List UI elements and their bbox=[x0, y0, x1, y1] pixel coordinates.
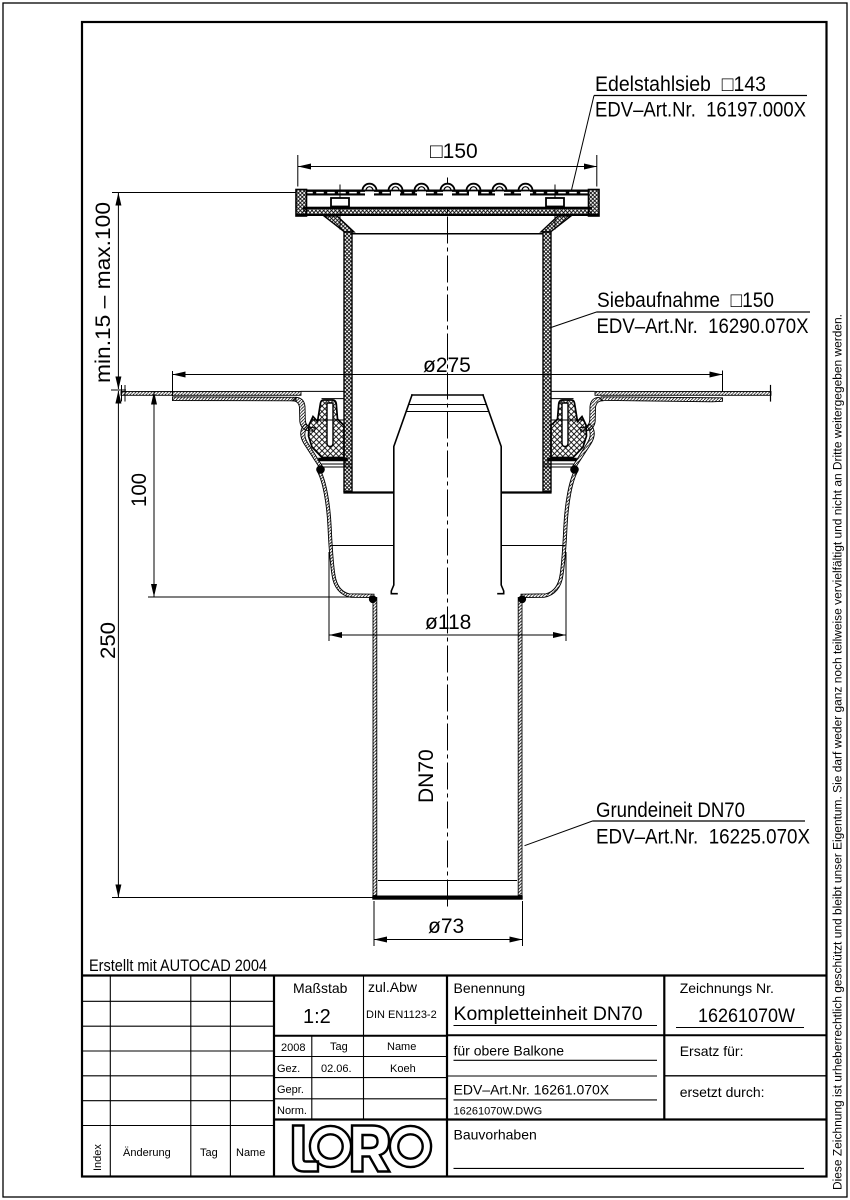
svg-text:Koeh: Koeh bbox=[390, 1063, 416, 1075]
svg-text:Zeichnungs Nr.: Zeichnungs Nr. bbox=[680, 980, 774, 996]
svg-text:Ersatz für:: Ersatz für: bbox=[680, 1043, 744, 1059]
svg-text:250: 250 bbox=[97, 622, 120, 659]
svg-text:1:2: 1:2 bbox=[303, 1006, 331, 1028]
svg-text:für obere Balkone: für obere Balkone bbox=[454, 1043, 565, 1059]
svg-text:16261070W.DWG: 16261070W.DWG bbox=[454, 1106, 543, 1118]
svg-text:Diese Zeichnung ist urheberrec: Diese Zeichnung ist urheberrechtlich ges… bbox=[831, 314, 845, 1190]
svg-text:Name: Name bbox=[236, 1147, 265, 1159]
svg-text:Erstellt mit AUTOCAD 2004: Erstellt mit AUTOCAD 2004 bbox=[89, 956, 267, 975]
svg-text:16261070W: 16261070W bbox=[698, 1006, 795, 1027]
svg-text:100: 100 bbox=[128, 473, 151, 507]
svg-text:Gez.: Gez. bbox=[277, 1063, 300, 1075]
svg-text:Maßstab: Maßstab bbox=[293, 980, 348, 996]
svg-text:EDV–Art.Nr. 16225.070X: EDV–Art.Nr. 16225.070X bbox=[596, 826, 810, 849]
svg-text:Benennung: Benennung bbox=[454, 980, 526, 996]
svg-text:2008: 2008 bbox=[281, 1042, 305, 1054]
svg-text:Änderung: Änderung bbox=[123, 1147, 171, 1159]
svg-text:ø118: ø118 bbox=[425, 611, 471, 634]
svg-text:Grundeineit DN70: Grundeineit DN70 bbox=[596, 799, 745, 822]
svg-text:EDV–Art.Nr. 16290.070X: EDV–Art.Nr. 16290.070X bbox=[597, 315, 809, 338]
svg-text:02.06.: 02.06. bbox=[321, 1063, 352, 1075]
svg-text:DIN EN1123-2: DIN EN1123-2 bbox=[366, 1009, 437, 1021]
svg-text:Name: Name bbox=[387, 1041, 416, 1053]
svg-text:Index: Index bbox=[92, 1144, 104, 1171]
svg-text:EDV–Art.Nr. 16261.070X: EDV–Art.Nr. 16261.070X bbox=[454, 1082, 610, 1098]
svg-text:Norm.: Norm. bbox=[277, 1105, 307, 1117]
svg-text:Kompletteinheit DN70: Kompletteinheit DN70 bbox=[454, 1004, 643, 1025]
svg-text:Siebaufnahme □150: Siebaufnahme □150 bbox=[597, 289, 774, 312]
svg-text:□150: □150 bbox=[430, 140, 478, 163]
svg-text:min.15 – max.100: min.15 – max.100 bbox=[92, 202, 115, 383]
svg-text:DN70: DN70 bbox=[415, 749, 438, 803]
svg-text:ø275: ø275 bbox=[423, 354, 471, 377]
svg-text:Gepr.: Gepr. bbox=[277, 1084, 304, 1096]
svg-text:ersetzt durch:: ersetzt durch: bbox=[680, 1084, 765, 1100]
svg-text:Tag: Tag bbox=[330, 1041, 348, 1053]
svg-text:zul.Abw: zul.Abw bbox=[368, 979, 418, 995]
svg-text:ø73: ø73 bbox=[428, 915, 464, 938]
svg-text:Edelstahlsieb □143: Edelstahlsieb □143 bbox=[595, 73, 766, 96]
svg-text:EDV–Art.Nr. 16197.000X: EDV–Art.Nr. 16197.000X bbox=[595, 99, 806, 122]
svg-text:Tag: Tag bbox=[200, 1147, 218, 1159]
svg-text:Bauvorhaben: Bauvorhaben bbox=[454, 1127, 537, 1143]
